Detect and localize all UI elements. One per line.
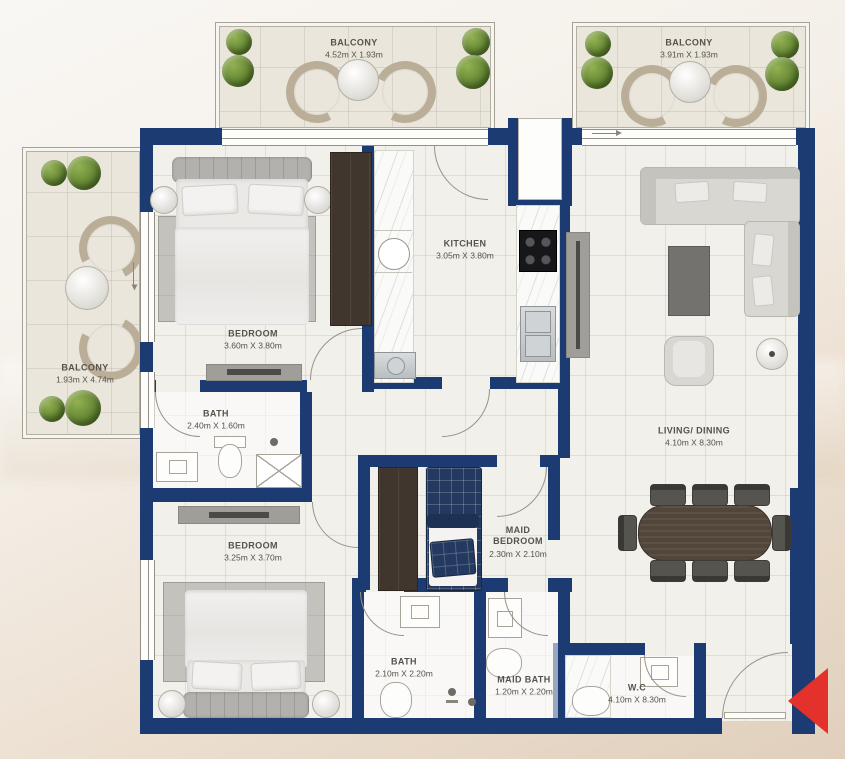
room-label-bedroom-1: BEDROOM 3.60m X 3.80m: [224, 329, 282, 352]
sink-basin: [525, 311, 551, 333]
wall-segment: [796, 128, 815, 145]
bed-pillow: [250, 661, 301, 692]
plant-icon: [456, 55, 490, 89]
wall-segment: [508, 118, 518, 206]
floor-plan: BALCONY 4.52m X 1.93m BALCONY 3.91m X 1.…: [0, 0, 845, 759]
side-table-center: [769, 351, 775, 357]
tv-screen: [576, 241, 580, 349]
plant-icon: [581, 57, 613, 89]
cooktop: [519, 230, 557, 272]
sink-basin: [411, 605, 429, 619]
sofa-pillow: [674, 181, 709, 203]
balcony-table: [65, 266, 109, 310]
room-label-bath-2: BATH 2.10m X 2.20m: [375, 657, 433, 680]
washing-machine: [374, 352, 416, 379]
shower-head: [468, 698, 476, 706]
sofa-back: [641, 168, 799, 179]
room-label-balcony-top-right: BALCONY 3.91m X 1.93m: [660, 38, 718, 61]
bedroom-1-tv-console: [206, 364, 302, 381]
balcony-table: [669, 61, 711, 103]
bed-duvet: [175, 227, 309, 324]
maid-bed-pillow: [430, 538, 477, 578]
plant-icon: [222, 55, 254, 87]
coffee-table: [668, 246, 710, 316]
balcony-table: [337, 59, 379, 101]
window-left-upper: [140, 212, 155, 342]
balcony-top-left: BALCONY 4.52m X 1.93m: [215, 22, 495, 132]
sofa-back: [788, 222, 799, 316]
tv-screen: [227, 369, 281, 375]
nightstand: [150, 186, 178, 214]
shower-tray: [256, 454, 302, 488]
wall-segment: [140, 488, 312, 502]
dining-chair: [692, 484, 728, 506]
bedroom-1-wardrobe: [330, 152, 372, 326]
sofa-armrest: [641, 168, 656, 224]
wall-segment: [200, 380, 307, 392]
bed-pillow: [181, 184, 238, 217]
sink-basin: [169, 460, 187, 474]
bedroom-2-tv-console: [178, 506, 300, 524]
nightstand: [304, 186, 332, 214]
counter-divider: [374, 272, 412, 273]
balcony-chair: [366, 53, 444, 131]
balcony-top-right: BALCONY 3.91m X 1.93m: [572, 22, 810, 132]
counter-divider: [374, 230, 412, 231]
dining-chair: [772, 515, 791, 551]
door-arc-entrance: [722, 652, 788, 718]
dining-chair: [618, 515, 637, 551]
wall-segment: [474, 592, 486, 718]
maid-bed-fold: [427, 514, 479, 528]
dining-chair: [734, 560, 770, 582]
plant-icon: [585, 31, 611, 57]
shower-head: [448, 688, 456, 696]
plant-icon: [771, 31, 799, 59]
wall-segment: [352, 578, 366, 592]
door-arc-maid-bedroom: [497, 467, 547, 517]
counter-basin: [378, 238, 410, 270]
wall-segment: [140, 660, 153, 718]
bed-headboard: [183, 692, 309, 718]
dining-chair: [650, 560, 686, 582]
sliding-indicator-arrow: [616, 130, 625, 136]
armchair: [664, 336, 714, 386]
plant-icon: [765, 57, 799, 91]
bedroom-2-bed: [183, 590, 309, 718]
service-niche: [518, 118, 562, 200]
sofa-horizontal: [640, 167, 800, 225]
bed-pillow: [191, 661, 242, 692]
sliding-indicator-arrow: [132, 285, 138, 294]
plant-icon: [226, 29, 252, 55]
wall-segment: [790, 488, 815, 644]
plant-icon: [67, 156, 101, 190]
sofa-pillow: [751, 275, 774, 307]
dining-chair: [692, 560, 728, 582]
washer-door: [387, 357, 405, 375]
plant-icon: [462, 28, 490, 56]
window-top-right: [582, 129, 796, 146]
dining-chair: [734, 484, 770, 506]
maid-wardrobe: [378, 467, 418, 591]
room-label-bedroom-2: BEDROOM 3.25m X 3.70m: [224, 541, 282, 564]
door-arc-bath-2: [360, 592, 404, 636]
dining-table: [638, 505, 772, 561]
wall-segment: [553, 643, 645, 655]
sink-basin: [525, 335, 551, 357]
room-label-balcony-top-left: BALCONY 4.52m X 1.93m: [325, 38, 383, 61]
toilet-bowl: [572, 686, 610, 716]
room-label-wc: W.C 4.10m X 8.30m: [608, 683, 666, 706]
bed-pillow: [247, 184, 304, 217]
plant-icon: [39, 396, 65, 422]
side-table: [756, 338, 788, 370]
entrance-arrow: [788, 668, 828, 734]
nightstand: [158, 690, 186, 718]
toilet-bowl: [218, 444, 242, 478]
shower-head: [270, 438, 278, 446]
door-arc-maid-bath: [504, 592, 548, 636]
bedroom-1-bed: [172, 157, 312, 325]
door-arc-bedroom-1: [310, 328, 362, 380]
sliding-indicator-line: [133, 262, 134, 286]
door-arc-kitchen: [442, 389, 490, 437]
balcony-chair: [697, 57, 775, 135]
bath-1-vanity: [156, 452, 198, 482]
tv-screen: [209, 512, 269, 518]
toilet-bowl: [486, 648, 522, 678]
living-tv-panel: [566, 232, 590, 358]
door-arc-bedroom-2: [312, 502, 358, 548]
armchair-seat: [673, 341, 705, 377]
room-label-maid-bedroom: MAID BEDROOM 2.30m X 2.10m: [486, 525, 550, 559]
window-left-lower: [140, 560, 155, 660]
sliding-indicator-line: [592, 133, 616, 134]
plant-icon: [65, 390, 101, 426]
maid-bed: [426, 467, 482, 591]
wall-segment: [694, 643, 706, 718]
wall-segment: [366, 455, 497, 467]
room-label-living-dining: LIVING/ DINING 4.10m X 8.30m: [658, 426, 730, 449]
window-top-left: [222, 129, 488, 146]
room-label-kitchen: KITCHEN 3.05m X 3.80m: [436, 239, 494, 262]
wall-segment: [558, 380, 570, 458]
toilet-bowl: [380, 682, 412, 718]
balcony-left: BALCONY 1.93m X 4.74m: [22, 147, 144, 439]
room-label-bath-1: BATH 2.40m X 1.60m: [187, 409, 245, 432]
room-label-balcony-left: BALCONY 1.93m X 4.74m: [56, 363, 114, 386]
bath-2-vanity: [400, 596, 440, 628]
wall-segment: [140, 718, 722, 734]
nightstand: [312, 690, 340, 718]
wall-segment: [140, 342, 153, 372]
bed-duvet: [185, 590, 307, 668]
wall-segment: [548, 578, 572, 592]
kitchen-sink: [520, 306, 556, 362]
plant-icon: [41, 160, 67, 186]
sofa-pillow: [751, 233, 774, 267]
wall-segment: [798, 145, 815, 488]
sofa-vertical: [744, 221, 800, 317]
wall-segment: [358, 455, 370, 590]
sofa-pillow: [732, 181, 767, 203]
dining-chair: [650, 484, 686, 506]
shower-stem: [446, 700, 458, 703]
room-label-maid-bath: MAID BATH 1.20m X 2.20m: [495, 675, 553, 698]
door-arc-balcony: [434, 146, 488, 200]
